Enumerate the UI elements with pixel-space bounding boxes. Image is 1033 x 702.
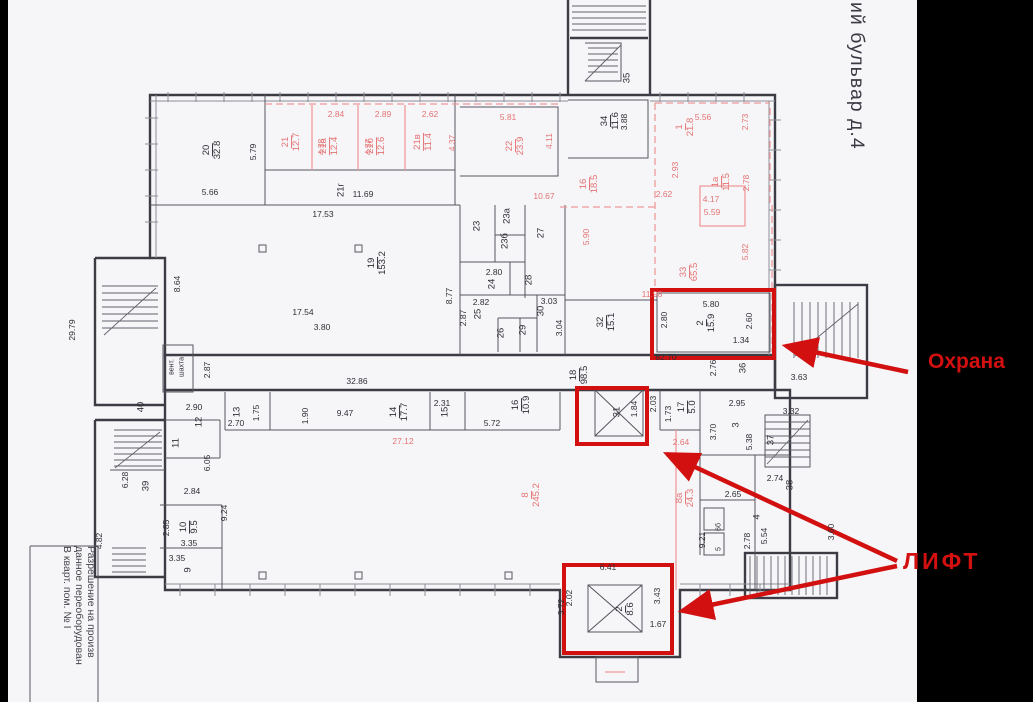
dimension-label: 3.70 <box>708 424 718 441</box>
elevator-annotation-label: ЛИФТ <box>903 548 980 575</box>
room-label: 175.0 <box>677 400 699 413</box>
dimension-label: 2.87 <box>458 310 468 327</box>
page: 2032.82112.721а12.421б12.621в11.42223.93… <box>0 0 1033 702</box>
room-number-label: 35 <box>622 73 633 84</box>
street-address-label: ий бульвар д.4 <box>845 2 868 150</box>
room-label: 109.5 <box>179 520 201 533</box>
dimension-label: 1.73 <box>663 406 673 423</box>
dimension-label: 3.03 <box>541 296 558 306</box>
dimension-label: 9.24 <box>219 505 229 522</box>
dimension-label: 4.37 <box>447 135 457 152</box>
plan-labels-layer: 2032.82112.721а12.421б12.621в11.42223.93… <box>0 0 1033 702</box>
dimension-label: 3.43 <box>652 588 662 605</box>
room-number-label: 23 <box>472 221 483 232</box>
dimension-label: 1.67 <box>650 619 667 629</box>
dimension-label: 5.66 <box>202 187 219 197</box>
room-label: 1618.5 <box>579 175 601 194</box>
permission-note-line-1: Разрешение на произв <box>85 546 97 702</box>
dimension-label: 2.76 <box>708 360 718 377</box>
room-number-label: 3 <box>731 422 742 427</box>
title-block: Разрешение на произв данное переоборудов… <box>61 546 97 702</box>
dimension-label: 2.60 <box>744 313 754 330</box>
dimension-label: 9.47 <box>337 408 354 418</box>
room-label: 3215.1 <box>596 313 618 332</box>
dimension-label: 4.38 <box>316 139 326 156</box>
dimension-label: 2.93 <box>670 162 680 179</box>
room-number-label: 5 <box>716 547 723 551</box>
dimension-label: 2.65 <box>725 489 742 499</box>
room-number-label: 40 <box>136 402 147 413</box>
dimension-label: шахта <box>179 357 186 377</box>
room-number-label: 9 <box>183 567 194 572</box>
dimension-label: 2.64 <box>673 437 690 447</box>
dimension-label: 2.31 <box>434 398 451 408</box>
dimension-label: 2.78 <box>742 533 752 550</box>
dimension-label: 2.03 <box>648 396 658 413</box>
room-number-label: 26 <box>496 328 507 339</box>
dimension-label: 5.79 <box>248 144 258 161</box>
room-number-label: 31 <box>612 407 623 418</box>
room-label: 2223.9 <box>505 137 527 156</box>
dimension-label: 2.90 <box>186 402 203 412</box>
dimension-label: 5.54 <box>759 528 769 545</box>
room-number-label: 23а <box>502 208 513 224</box>
dimension-label: 3.04 <box>554 320 564 337</box>
permission-note-line-2: данное переоборудован <box>73 546 85 702</box>
dimension-label: 10.67 <box>533 191 554 201</box>
dimension-label: 6.28 <box>120 472 130 489</box>
room-label: 8а24.3 <box>675 489 697 508</box>
dimension-label: 2.80 <box>659 312 669 329</box>
room-number-label: 36 <box>738 363 749 374</box>
dimension-label: 2.89 <box>375 109 392 119</box>
dimension-label: 2.84 <box>328 109 345 119</box>
room-number-label: 38 <box>785 480 796 491</box>
dimension-label: 2.84 <box>184 486 201 496</box>
room-label: 8245.2 <box>521 483 543 507</box>
room-number-label: 25 <box>473 309 484 320</box>
dimension-label: 17.53 <box>312 209 333 219</box>
dimension-label: 2.95 <box>729 398 746 408</box>
dimension-label: 29.79 <box>67 319 77 340</box>
room-number-label: 4 <box>752 514 763 519</box>
dimension-label: 5.59 <box>704 207 721 217</box>
dimension-label: 2.80 <box>486 267 503 277</box>
dimension-label: 2.85 <box>161 520 171 537</box>
room-number-label: 12 <box>194 417 205 428</box>
room-number-label: 30 <box>536 306 547 317</box>
room-number-label: 21г <box>336 183 347 197</box>
room-number-label: 39 <box>141 481 152 492</box>
dimension-label: 3.80 <box>314 322 331 332</box>
dimension-label: 5.82 <box>740 244 750 261</box>
dimension-label: 32.86 <box>346 376 367 386</box>
dimension-label: 2.70 <box>228 418 245 428</box>
dimension-label: 1.75 <box>251 405 261 422</box>
room-number-label: 24 <box>487 279 498 290</box>
dimension-label: 5.56 <box>695 112 712 122</box>
dimension-label: 5.38 <box>744 434 754 451</box>
dimension-label: 8.64 <box>172 276 182 293</box>
dimension-label: 82.70 <box>655 352 676 362</box>
dimension-label: 4.11 <box>544 133 554 149</box>
dimension-label: 1.34 <box>733 335 750 345</box>
room-number-label: 23б <box>500 233 511 249</box>
room-number-label: 15 <box>440 407 451 418</box>
dimension-label: 3.32 <box>783 406 800 416</box>
room-number-label: 11 <box>171 438 182 448</box>
room-label: 28.6 <box>615 602 637 615</box>
room-label: 2032.8 <box>202 141 224 160</box>
room-label: 1417.7 <box>389 403 411 422</box>
dimension-label: 5.80 <box>703 299 720 309</box>
room-label: 21в11.4 <box>413 133 435 151</box>
dimension-label: 1.84 <box>629 401 639 418</box>
room-label: 215.9 <box>696 314 718 333</box>
dimension-label: 11.98 <box>642 289 663 299</box>
security-annotation-label: Охрана <box>928 350 1005 374</box>
dimension-label: 2.62 <box>656 189 673 199</box>
room-number-label: 13 <box>232 407 243 418</box>
dimension-label: 2.82 <box>473 297 490 307</box>
dimension-label: 1.90 <box>300 408 310 425</box>
dimension-label: 4.37 <box>363 139 373 156</box>
room-label: 3365.5 <box>679 263 701 282</box>
dimension-label: вент. <box>169 359 176 375</box>
room-label: 1898.5 <box>569 366 591 385</box>
dimension-label: 8.77 <box>444 288 454 305</box>
dimension-label: 2.78 <box>741 175 751 192</box>
dimension-label: 3.72 <box>556 599 566 616</box>
dimension-label: 2.62 <box>422 109 439 119</box>
dimension-label: 6.41 <box>600 562 617 572</box>
dimension-label: 3.63 <box>791 372 808 382</box>
dimension-label: 4.17 <box>703 194 720 204</box>
dimension-label: 3.35 <box>181 538 198 548</box>
room-label: 121.8 <box>675 118 697 137</box>
room-number-label: 29 <box>518 325 529 336</box>
dimension-label: 5.90 <box>581 229 591 246</box>
room-label: 1а11.5 <box>711 173 733 191</box>
room-label: 19153.2 <box>367 251 389 275</box>
room-number-label: 6б <box>716 523 723 531</box>
dimension-label: 6.05 <box>202 455 212 472</box>
dimension-label: 5.81 <box>500 112 517 122</box>
dimension-label: 9.21 <box>697 532 707 549</box>
dimension-label: 17.54 <box>292 307 313 317</box>
room-number-label: 37 <box>766 435 777 446</box>
dimension-label: 3.60 <box>826 524 836 541</box>
dimension-label: 2.74 <box>767 473 784 483</box>
room-number-label: 27 <box>536 228 547 239</box>
dimension-label: 2.73 <box>740 114 750 131</box>
permission-note-line-3: В кварт. пом. № I <box>61 546 73 702</box>
room-label: 1610.9 <box>511 396 533 415</box>
dimension-label: 2.87 <box>202 362 212 379</box>
dimension-label: 27.12 <box>392 436 413 446</box>
dimension-label: 5.72 <box>484 418 501 428</box>
dimension-label: 11.69 <box>353 189 374 199</box>
room-number-label: 28 <box>524 275 535 286</box>
room-label: 2112.7 <box>281 133 303 152</box>
dimension-label: 3.88 <box>619 114 629 131</box>
dimension-label: 3.35 <box>169 553 186 563</box>
